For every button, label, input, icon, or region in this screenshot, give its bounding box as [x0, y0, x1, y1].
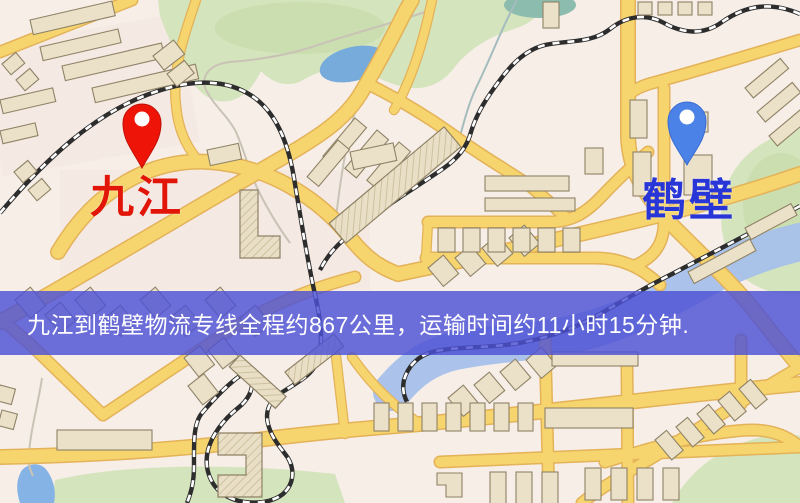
route-info-text: 九江到鹤壁物流专线全程约867公里，运输时间约11小时15分钟.	[0, 306, 689, 340]
map-canvas	[0, 0, 800, 503]
origin-city-label: 九江	[90, 176, 184, 220]
destination-city-label: 鹤壁	[642, 179, 736, 223]
logistics-map-image: 九江 鹤壁 九江到鹤壁物流专线全程约867公里，运输时间约11小时15分钟.	[0, 0, 800, 503]
route-info-banner: 九江到鹤壁物流专线全程约867公里，运输时间约11小时15分钟.	[0, 291, 800, 355]
